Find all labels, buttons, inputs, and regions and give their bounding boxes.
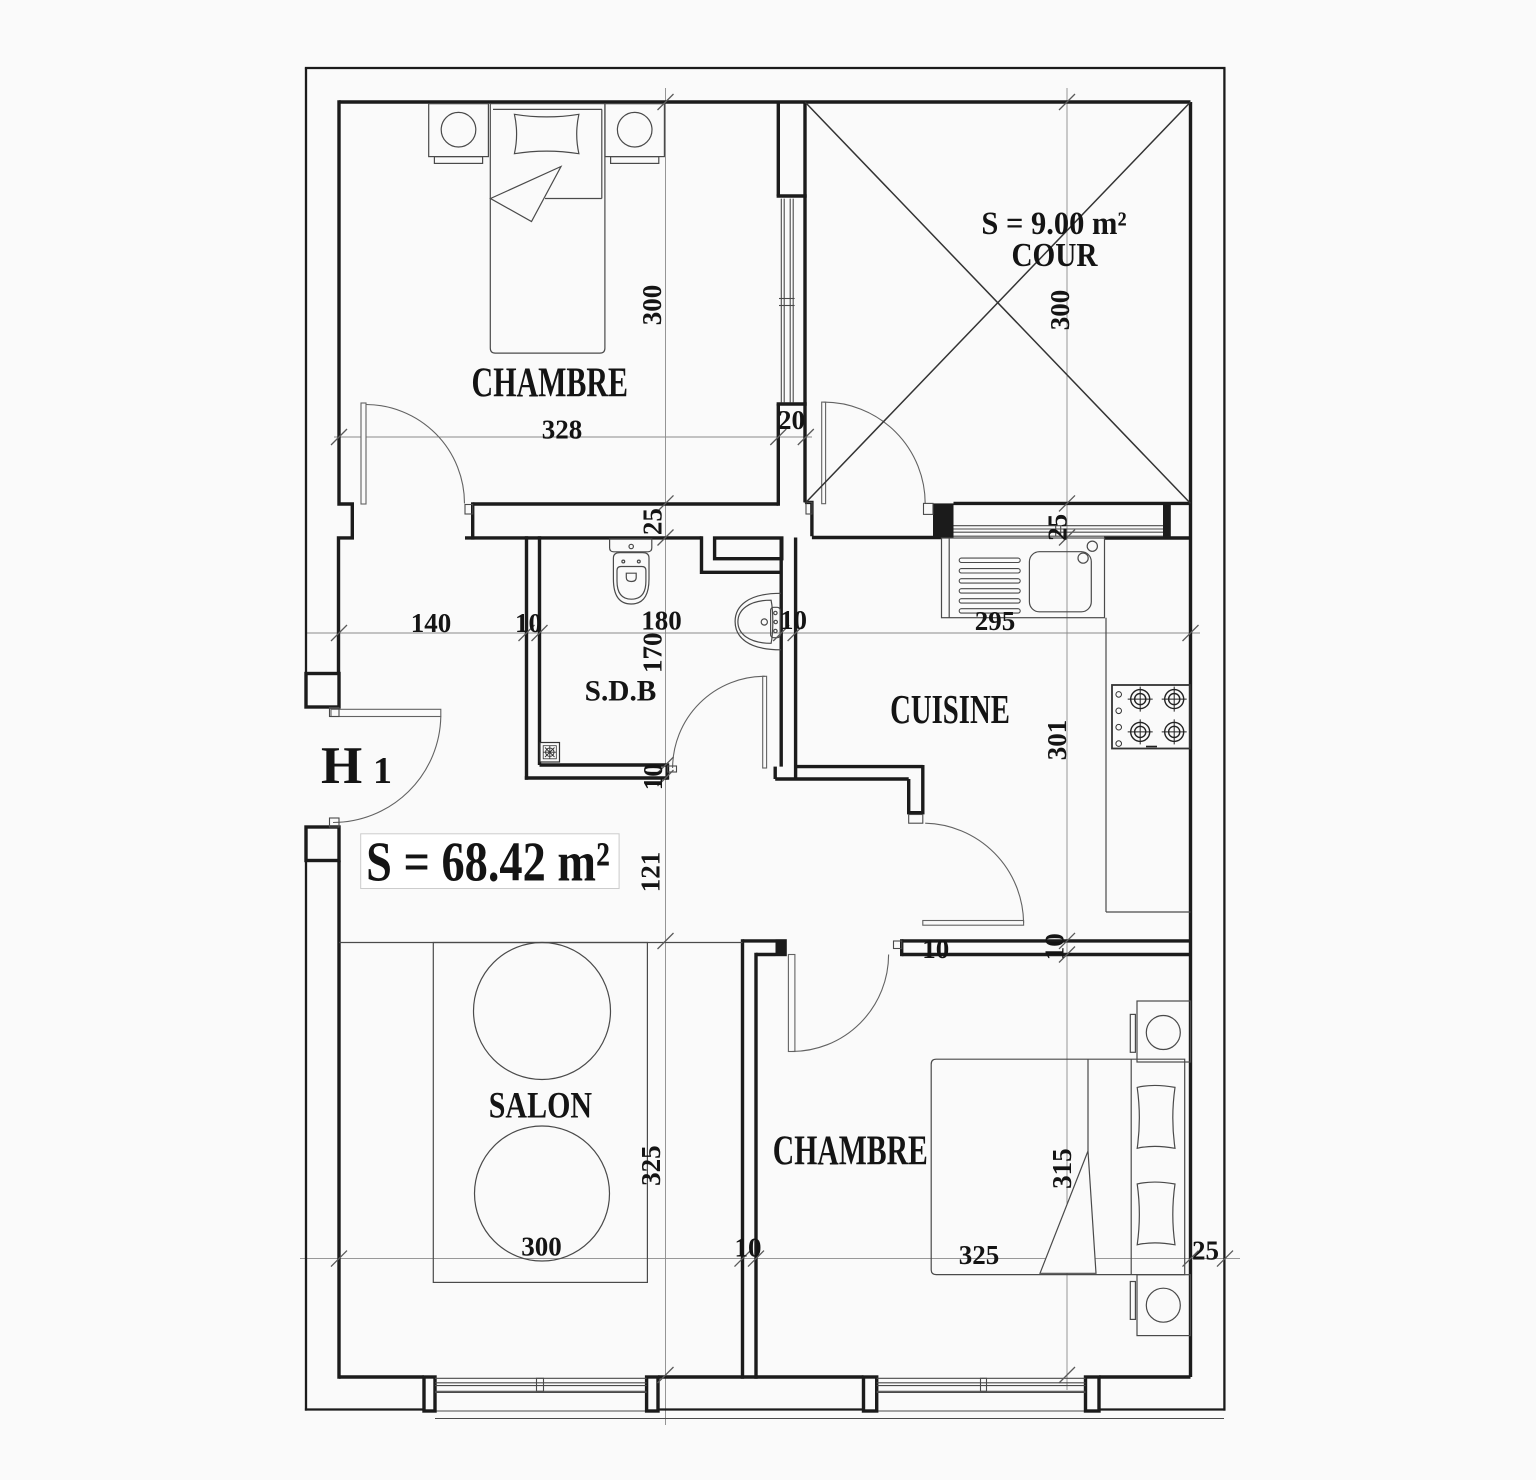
svg-text:S.D.B: S.D.B [585, 676, 657, 708]
svg-text:COUR: COUR [1011, 237, 1098, 274]
svg-text:20: 20 [778, 405, 805, 435]
svg-text:10: 10 [780, 605, 807, 635]
svg-text:10: 10 [638, 763, 668, 790]
svg-text:325: 325 [959, 1240, 1000, 1270]
svg-text:10: 10 [735, 1233, 762, 1263]
svg-text:10: 10 [922, 934, 949, 964]
svg-text:300: 300 [637, 285, 667, 326]
svg-text:S = 68.42 m²: S = 68.42 m² [366, 832, 610, 894]
svg-text:25: 25 [637, 508, 667, 535]
svg-text:25: 25 [1192, 1236, 1219, 1266]
svg-text:170: 170 [638, 632, 668, 673]
svg-text:CHAMBRE: CHAMBRE [472, 360, 629, 406]
svg-text:CHAMBRE: CHAMBRE [773, 1128, 928, 1174]
svg-text:121: 121 [636, 852, 666, 893]
svg-text:300: 300 [1045, 290, 1075, 331]
svg-text:H: H [321, 737, 362, 795]
svg-text:328: 328 [542, 415, 583, 445]
svg-text:315: 315 [1047, 1148, 1077, 1189]
svg-text:SALON: SALON [489, 1085, 592, 1126]
svg-text:1: 1 [373, 750, 392, 792]
svg-text:25: 25 [1043, 514, 1073, 541]
svg-text:301: 301 [1042, 720, 1072, 761]
svg-text:180: 180 [641, 606, 682, 636]
svg-text:325: 325 [636, 1145, 666, 1186]
svg-text:CUISINE: CUISINE [890, 686, 1010, 732]
svg-text:300: 300 [521, 1231, 562, 1261]
svg-text:10: 10 [515, 608, 542, 638]
svg-text:10: 10 [1040, 933, 1070, 960]
svg-text:295: 295 [975, 606, 1016, 636]
svg-text:140: 140 [411, 608, 452, 638]
